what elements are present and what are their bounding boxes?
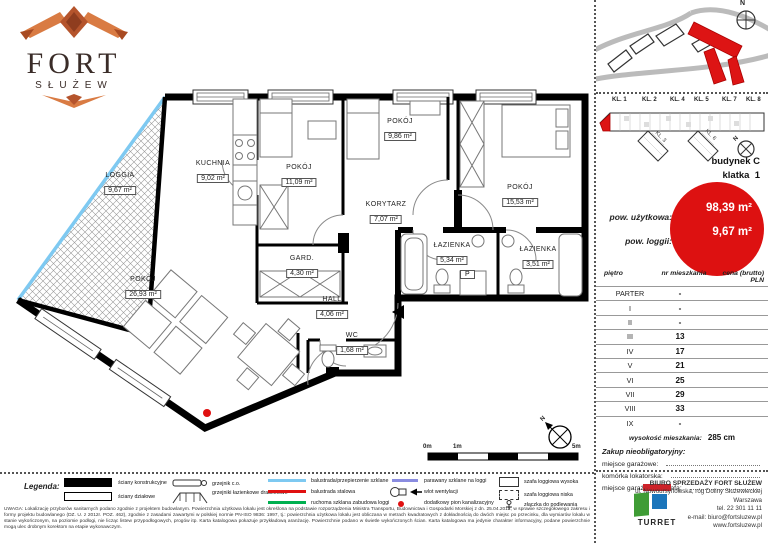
partition-wall-swatch — [64, 492, 112, 501]
map-compass-n-label: N — [740, 0, 745, 7]
disclaimer-text: UWAGA: Lokalizację przyborów sanitarnych… — [4, 507, 590, 531]
legend-label: szafa loggiowa wysoka — [524, 479, 578, 485]
table-row: V21 — [596, 358, 768, 372]
loggia-area-label: pow. loggii: — [625, 236, 672, 246]
sales-office-block: TURRET BIURO SPRZEDAŻY FORT SŁUŻEW ul. N… — [596, 470, 768, 543]
low-cabinet-icon — [499, 490, 519, 500]
structural-wall-swatch — [64, 478, 112, 487]
logo-crown-icon — [14, 4, 134, 44]
scale-mid-label: 1m — [453, 444, 462, 450]
vent-inlet-icon — [388, 486, 422, 498]
table-row: IV17 — [596, 344, 768, 358]
room-label-kuchnia: KUCHNIA 9,02 m² — [196, 160, 230, 185]
room-label-pokoj-9: POKÓJ 9,86 m² — [384, 118, 416, 143]
sidebar: N KL. 1 KL. 2 KL. 4 KL. 5 KL. 7 KL. 8 — [594, 0, 768, 543]
floors-table: piętro nr mieszkania cena (brutto) PLN P… — [596, 268, 768, 470]
table-row: VIII33 — [596, 401, 768, 415]
staircase-label: klatka 1 — [722, 170, 760, 181]
kl-label-4: KL. 4 — [670, 97, 685, 103]
catalog-card: FORT SŁUŻEW — [0, 0, 768, 543]
room-label-pokoj-26: POKÓJ 26,93 m² — [125, 276, 161, 301]
optional-item-garage: miejsce garażowe: — [602, 459, 762, 468]
legend-label: grzejnik c.o. — [212, 481, 240, 487]
table-row: VII29 — [596, 387, 768, 401]
towel-radiator-icon — [170, 489, 210, 505]
usable-area-value: 98,39 m² — [706, 202, 752, 214]
table-row: IX- — [596, 416, 768, 430]
legend-bar: Legenda: ściany konstrukcyjne ściany dzi… — [0, 472, 594, 508]
apartment-height: wysokość mieszkania: 285 cm — [596, 433, 768, 442]
room-label-korytarz: KORYTARZ 7,07 m² — [366, 201, 407, 226]
legend-label: balustrada/przepierzenie szklane — [311, 478, 388, 484]
room-label-loggia: LOGGIA 9,67 m² — [104, 172, 136, 197]
building-strip: KL. 1 KL. 2 KL. 4 KL. 5 KL. 7 KL. 8 — [596, 92, 768, 188]
usable-area-label: pow. użytkowa: — [610, 212, 673, 222]
table-row: PARTER- — [596, 286, 768, 300]
tall-cabinet-icon — [499, 477, 519, 487]
table-row: VI25 — [596, 372, 768, 386]
kl-label-2: KL. 2 — [642, 97, 657, 103]
areas-section: pow. użytkowa: pow. loggii: 98,39 m² 9,6… — [596, 188, 768, 268]
room-label-lazienka-5: ŁAZIENKA 5,34 m² — [433, 242, 470, 267]
room-label-gard: GARD. 4,30 m² — [286, 255, 318, 280]
room-label-wc: WC 1,68 m² — [336, 332, 368, 357]
room-label-pokoj-15: POKÓJ 15,53 m² — [502, 184, 538, 209]
optional-purchase-title: Zakup nieobligatoryjny: — [602, 447, 768, 456]
steel-balustrade-swatch — [268, 490, 306, 493]
legend-label: parawany szklane na loggi — [424, 478, 486, 484]
legend-label: szafa loggiowa niska — [524, 492, 573, 498]
logo-title: FORT — [12, 49, 136, 79]
legend-label: dodatkowy pion kanalizacyjny — [424, 500, 494, 506]
building-name: budynek C — [711, 156, 760, 167]
kl-label-5: KL. 5 — [694, 97, 709, 103]
table-row: I- — [596, 300, 768, 314]
site-map: N — [596, 0, 768, 92]
dotted-leader — [666, 459, 760, 466]
table-row: III13 — [596, 329, 768, 343]
glass-screen-swatch — [392, 479, 418, 482]
radiator-icon — [172, 478, 208, 488]
kl-label-8: KL. 8 — [746, 97, 761, 103]
floors-table-header: piętro nr mieszkania cena (brutto) PLN — [596, 268, 768, 286]
room-label-pokoj-11: POKÓJ 11,09 m² — [281, 164, 316, 189]
table-row: II- — [596, 315, 768, 329]
loggia-area-value: 9,67 m² — [712, 226, 752, 238]
legend-label: ściany działowe — [118, 494, 155, 500]
kl-label-1: KL. 1 — [612, 97, 627, 103]
legend-title: Legenda: — [24, 482, 60, 491]
site-map-drawing — [596, 0, 768, 92]
legend-label: balustrada stalowa — [311, 489, 355, 495]
area-badge: 98,39 m² 9,67 m² — [670, 182, 764, 276]
office-address: BIURO SPRZEDAŻY FORT SŁUŻEW ul. Nowoursy… — [635, 480, 762, 530]
scale-end-label: 5m — [572, 444, 581, 450]
legend-label: ściany konstrukcyjne — [118, 480, 167, 486]
movable-glass-swatch — [268, 501, 306, 504]
room-label-lazienka-3: ŁAZIENKA 3,51 m² — [519, 246, 556, 271]
legend-label: ruchoma szklana zabudowa loggi — [311, 500, 389, 506]
washer-label: P — [460, 270, 475, 279]
glass-balustrade-swatch — [268, 479, 306, 482]
scale-start-label: 0m — [423, 444, 432, 450]
room-label-hall: HALL 4,06 m² — [316, 296, 348, 321]
floor-plan-drawing — [8, 85, 593, 475]
kl-label-7: KL. 7 — [722, 97, 737, 103]
legend-label: wlot wentylacji — [424, 489, 458, 495]
